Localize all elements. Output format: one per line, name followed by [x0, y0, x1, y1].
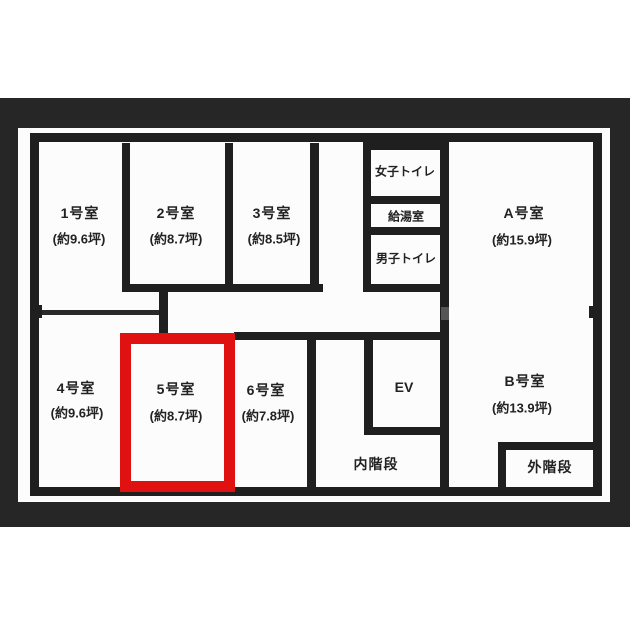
wall-outer-stairs-top [498, 442, 602, 450]
wall-elevator-bottom [364, 427, 449, 435]
wall-room2-room3 [225, 143, 233, 285]
room1-name: 1号室 [61, 203, 100, 223]
room1-size: (約9.6坪) [53, 229, 106, 248]
wall-rooms23-bottom [122, 284, 323, 292]
wall-outer-stairs-left [498, 442, 506, 496]
wall-room3-right [310, 143, 319, 292]
room4-size: (約9.6坪) [51, 403, 104, 422]
womens-toilet-label: 女子トイレ [375, 163, 435, 180]
wall-toilet-left [363, 142, 371, 292]
elevator-label: EV [395, 379, 414, 395]
wall-middle-row-top [234, 332, 449, 340]
room3-size: (約8.5坪) [248, 229, 301, 248]
room2-size: (約8.7坪) [150, 229, 203, 248]
wall-toilet-top [363, 142, 449, 150]
floorplan-image: 1号室 (約9.6坪) 2号室 (約8.7坪) 3号室 (約8.5坪) A号室 … [0, 0, 630, 630]
room5-size: (約8.7坪) [150, 406, 203, 425]
wall-hall-stub [159, 292, 168, 334]
wall-elevator-left [364, 332, 373, 435]
roomB-name: B号室 [504, 371, 545, 391]
mens-toilet-label: 男子トイレ [376, 250, 436, 267]
inner-staircase-label: 内階段 [354, 454, 399, 474]
wall-room4-top [30, 310, 163, 315]
wall-room1-room2 [122, 143, 130, 292]
roomA-name: A号室 [503, 203, 544, 223]
room6-size: (約7.8坪) [242, 406, 295, 425]
room5-name: 5号室 [157, 379, 196, 399]
wall-toilet-bottom [363, 284, 449, 292]
room4-name: 4号室 [57, 378, 96, 398]
column-marker-left [30, 305, 42, 318]
column-marker-right [589, 306, 602, 318]
roomB-size: (約13.9坪) [492, 398, 552, 417]
room2-name: 2号室 [157, 203, 196, 223]
kitchenette-label: 給湯室 [388, 208, 424, 225]
room3-name: 3号室 [253, 203, 292, 223]
door-marker-corridor [441, 307, 449, 320]
room6-name: 6号室 [247, 380, 286, 400]
wall-toilet-divider2 [363, 227, 449, 235]
wall-toilet-divider1 [363, 196, 449, 204]
roomA-size: (約15.9坪) [492, 230, 552, 249]
outer-staircase-label: 外階段 [528, 457, 573, 477]
wall-room6-right [307, 332, 316, 487]
